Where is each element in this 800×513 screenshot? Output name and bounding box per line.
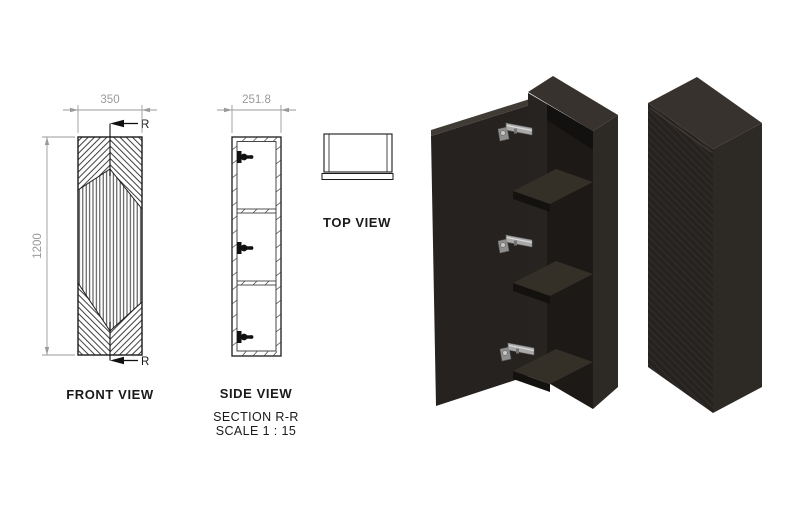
section-letter-bottom: R — [141, 356, 149, 368]
dim-arrow-icon — [70, 108, 78, 112]
section-title: SECTION R-R — [213, 410, 299, 424]
section-arrow-bottom-icon — [110, 357, 124, 364]
dim-arrow-icon — [281, 108, 289, 112]
technical-drawing-sheet: R R 350 1200 FRONT VIEW — [0, 0, 800, 513]
front-view-label: FRONT VIEW — [66, 387, 154, 402]
section-arrow-top-icon — [110, 120, 124, 127]
interior-left-wall — [528, 93, 547, 383]
front-height-value: 1200 — [32, 233, 44, 259]
scale-note: SCALE 1 : 15 — [216, 424, 297, 438]
side-depth-value: 251.8 — [242, 94, 271, 106]
dim-arrow-icon — [45, 137, 49, 145]
closed-cabinet-side — [713, 123, 762, 413]
front-view: R R 350 1200 FRONT VIEW — [32, 94, 157, 402]
dim-arrow-icon — [45, 347, 49, 355]
top-view-label: TOP VIEW — [323, 215, 391, 230]
side-view-label: SIDE VIEW — [220, 386, 293, 401]
side-view-section: 251.8 SIDE VIEW SECTION R-R SCALE 1 : 15 — [213, 94, 299, 438]
front-height-dimension: 1200 — [32, 137, 75, 355]
dim-arrow-icon — [142, 108, 150, 112]
top-outline — [324, 134, 392, 172]
top-view: TOP VIEW — [322, 134, 393, 230]
open-cabinet-render — [431, 76, 618, 409]
side-depth-dimension: 251.8 — [217, 94, 296, 133]
open-cabinet-right-side — [593, 115, 618, 409]
closed-cabinet-front-texture — [648, 103, 713, 413]
front-width-value: 350 — [100, 94, 119, 106]
drawing-canvas: R R 350 1200 FRONT VIEW — [0, 0, 800, 513]
top-door-strip — [322, 174, 393, 180]
dim-arrow-icon — [224, 108, 232, 112]
open-door-face — [431, 104, 537, 406]
closed-cabinet-render — [648, 77, 762, 413]
